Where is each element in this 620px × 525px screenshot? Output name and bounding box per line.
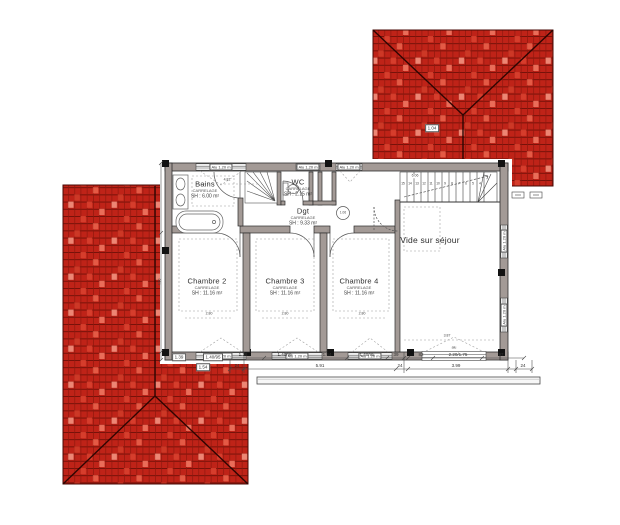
dim-bottom-5: 39 bbox=[393, 353, 398, 358]
room-area-chambre3: SH : 11.16 m² bbox=[270, 292, 300, 297]
room-label-wc: WC bbox=[292, 178, 305, 186]
stair-step-13: 13 bbox=[415, 182, 419, 185]
dim-total-4: 3.99 bbox=[452, 364, 461, 369]
dim-roof-mark: 1.04 bbox=[425, 124, 439, 132]
dim-roof-box-2: 1.40/95 bbox=[203, 353, 223, 361]
room-area-wc: SH : 2.15 m² bbox=[284, 193, 312, 198]
dim-room-width-ch2: 2.80 bbox=[206, 312, 213, 316]
dim-bottom-right-2: 2.20/1.75 bbox=[449, 353, 468, 358]
stair-step-11: 11 bbox=[429, 182, 432, 185]
room-finish-chambre3: CARRELAGE bbox=[273, 286, 298, 290]
stair-step-15: 15 bbox=[401, 182, 405, 185]
room-finish-dgt: CARRELAGE bbox=[291, 216, 316, 220]
room-label-vide: Vide sur séjour bbox=[400, 236, 460, 245]
dim-total-5: 24 bbox=[520, 364, 525, 369]
dim-room-width-ch3: 2.80 bbox=[282, 312, 289, 316]
room-finish-bains: CARRELAGE bbox=[193, 189, 218, 193]
room-finish-chambre4: CARRELAGE bbox=[347, 286, 372, 290]
lower-stair-fan bbox=[245, 172, 277, 203]
room-label-chambre2: Chambre 2 bbox=[188, 277, 227, 285]
dim-roof-box-3: 1.54 bbox=[196, 363, 210, 371]
stair-step-9: 9 bbox=[444, 182, 446, 185]
dim-bottom-right-3: 97 bbox=[498, 353, 503, 358]
dim-bottom-right-1: 82 bbox=[418, 353, 423, 358]
room-finish-chambre2: CARRELAGE bbox=[195, 286, 220, 290]
stair-step-4: 4 bbox=[479, 182, 481, 185]
dim-roof-box-1: 1.39 bbox=[172, 353, 186, 361]
dim-bottom-1: 1.18 bbox=[239, 353, 248, 358]
room-area-chambre2: SH : 11.16 m² bbox=[192, 292, 222, 297]
dim-total-2: 5.91 bbox=[316, 364, 325, 369]
alu-note: alu bbox=[452, 346, 457, 350]
plan-drawing bbox=[0, 0, 620, 525]
dim-left-height: 4.50 bbox=[158, 279, 162, 286]
dim-bottom-3: 1.54 bbox=[323, 353, 332, 358]
room-area-chambre4: SH : 11.16 m² bbox=[344, 292, 374, 297]
room-area-bains: SH : 6.00 m² bbox=[191, 195, 219, 200]
stair-step-7: 7 bbox=[458, 182, 460, 185]
room-label-chambre4: Chambre 4 bbox=[340, 277, 379, 285]
dim-bottom-2: 1.40/95 bbox=[277, 353, 292, 358]
stair-step-5: 5 bbox=[472, 182, 474, 185]
terrace-bar bbox=[257, 377, 540, 384]
dim-bottom-4: 1.40/95 bbox=[359, 353, 374, 358]
window-label-top-2: Alu 1.20 m bbox=[296, 164, 319, 171]
dim-total-1: 24 bbox=[234, 364, 239, 369]
level-mark-text: 1.06 bbox=[340, 211, 346, 214]
dim-stair-length: 6.06 bbox=[412, 174, 419, 178]
window-label-top-1: Alu 1.20 m bbox=[209, 164, 232, 171]
dim-bains-width: 4.81 bbox=[224, 178, 231, 182]
window-label-top-3: Alu 1.20 m bbox=[337, 164, 360, 171]
stair-step-14: 14 bbox=[408, 182, 412, 185]
dim-vide-width: 3.87 bbox=[444, 334, 451, 338]
stair-step-6: 6 bbox=[465, 182, 467, 185]
dim-room-width-ch4: 2.80 bbox=[359, 312, 366, 316]
roof-tag-boxes bbox=[512, 192, 542, 198]
floor-plan-canvas: Bains CARRELAGE SH : 6.00 m² WC CARRELAG… bbox=[0, 0, 620, 525]
stair-step-12: 12 bbox=[422, 182, 426, 185]
window-label-right-2: Alu 1.20 m bbox=[501, 303, 508, 326]
stair-step-8: 8 bbox=[451, 182, 453, 185]
window-label-right-1: Alu 1.20 m bbox=[501, 229, 508, 252]
room-area-dgt: SH : 9.33 m² bbox=[289, 222, 317, 227]
dim-total-3: 24 bbox=[397, 364, 402, 369]
room-label-dgt: Dgt bbox=[297, 207, 309, 215]
room-label-bains: Bains bbox=[195, 180, 215, 188]
room-finish-wc: CARRELAGE bbox=[286, 187, 311, 191]
room-label-chambre3: Chambre 3 bbox=[266, 277, 305, 285]
stair-step-10: 10 bbox=[436, 182, 440, 185]
